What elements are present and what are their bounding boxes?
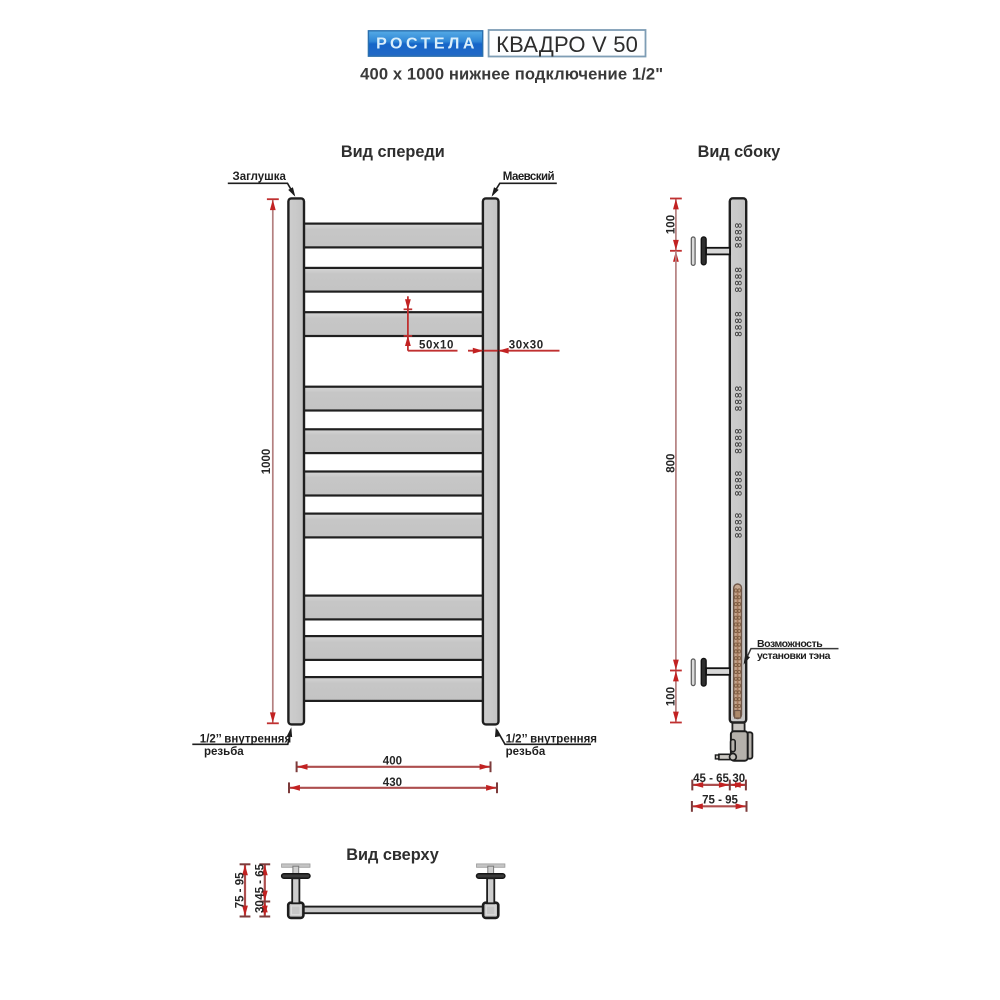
svg-text:РОСТЕЛА: РОСТЕЛА — [376, 36, 478, 53]
svg-text:800: 800 — [665, 454, 677, 473]
svg-text:430: 430 — [383, 777, 402, 789]
svg-text:резьба: резьба — [506, 746, 546, 758]
svg-text:50x10: 50x10 — [419, 340, 454, 352]
svg-text:Маевский: Маевский — [503, 171, 555, 183]
svg-text:75 - 95: 75 - 95 — [235, 872, 247, 908]
svg-text:1000: 1000 — [261, 449, 273, 475]
svg-text:Вид сверху: Вид сверху — [346, 846, 439, 864]
svg-text:резьба: резьба — [204, 746, 244, 758]
svg-text:30: 30 — [732, 773, 745, 785]
svg-text:45 - 65: 45 - 65 — [254, 863, 266, 899]
svg-text:400: 400 — [383, 756, 402, 768]
svg-text:30: 30 — [254, 900, 266, 913]
svg-text:100: 100 — [665, 687, 677, 706]
svg-text:Вид сбоку: Вид сбоку — [698, 143, 781, 161]
svg-text:КВАДРО V 50: КВАДРО V 50 — [496, 32, 638, 57]
svg-text:Вид спереди: Вид спереди — [341, 143, 445, 161]
svg-text:100: 100 — [665, 215, 677, 234]
svg-text:400 x 1000 нижнее подключение: 400 x 1000 нижнее подключение 1/2" — [360, 64, 663, 83]
svg-text:30x30: 30x30 — [509, 340, 544, 352]
svg-text:75 - 95: 75 - 95 — [702, 795, 738, 807]
svg-text:Заглушка: Заглушка — [233, 171, 287, 183]
svg-text:45 - 65: 45 - 65 — [693, 773, 729, 785]
svg-text:установки тэна: установки тэна — [757, 650, 831, 662]
